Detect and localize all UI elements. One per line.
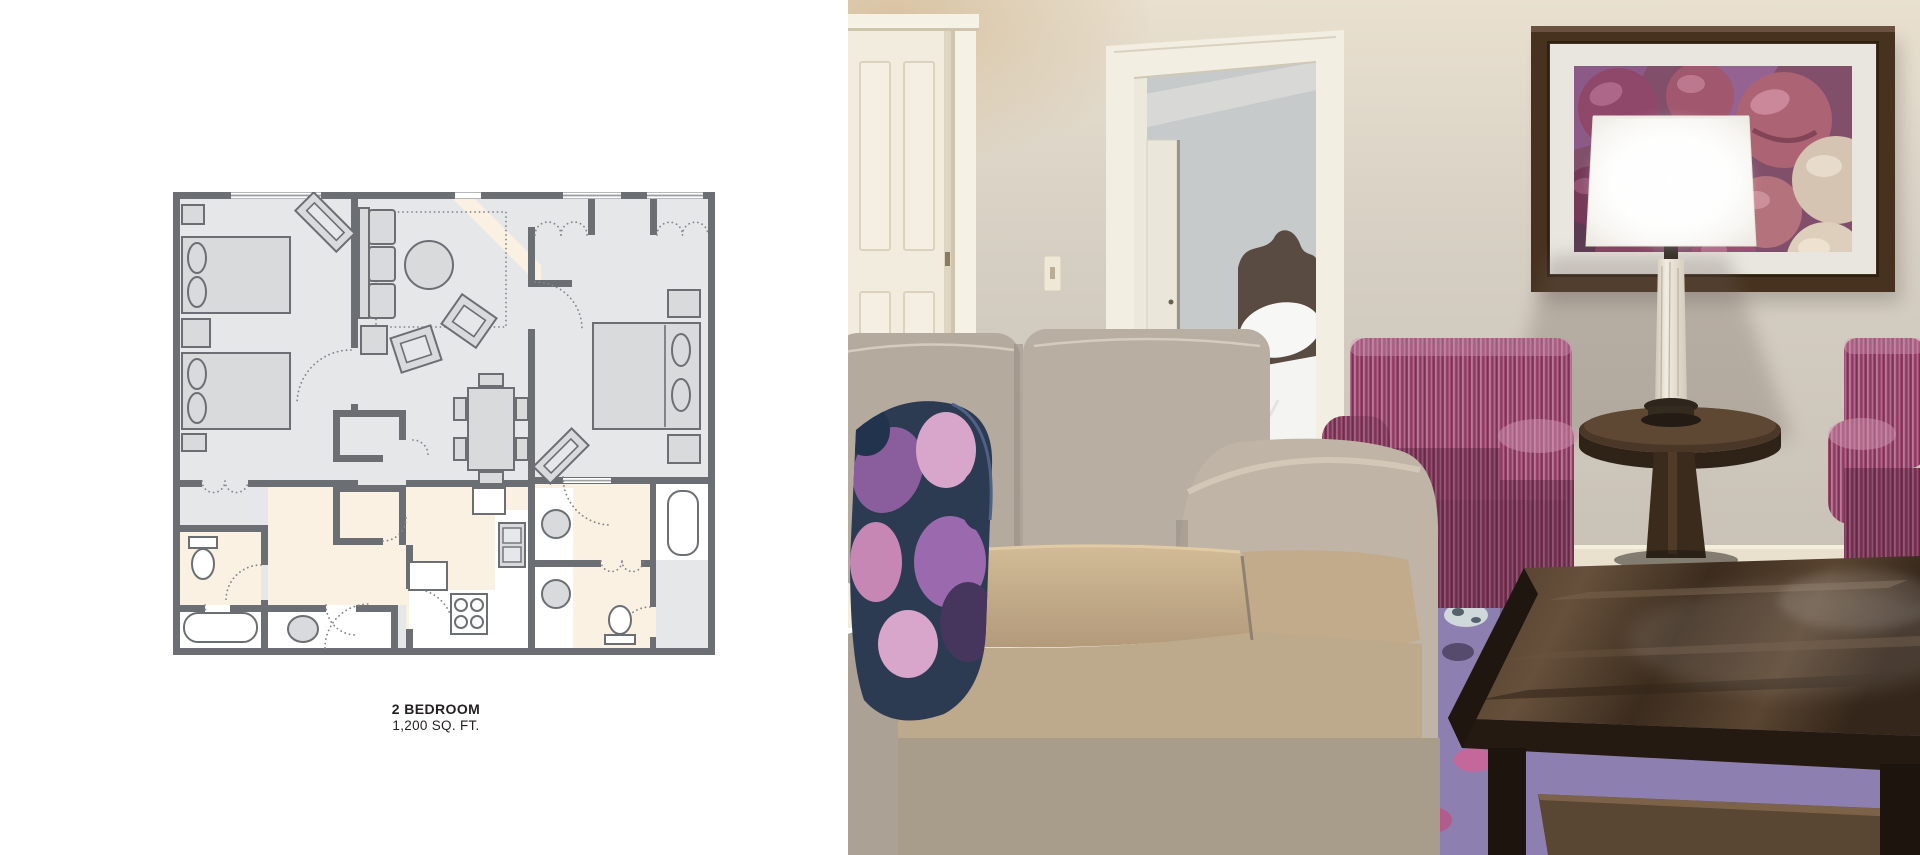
sofa-throw-pillow (848, 401, 996, 720)
nightstand (182, 434, 206, 451)
coffee-table (1448, 556, 1920, 855)
pillow (672, 334, 690, 366)
floorplan-title: 2 BEDROOM (165, 701, 707, 717)
sofa-cushion (369, 284, 395, 318)
floorplan-diagram (173, 192, 715, 655)
pillow (672, 379, 690, 411)
pillow (188, 277, 206, 307)
dining-chair (516, 398, 528, 420)
coffee-table-leg (1880, 764, 1920, 855)
sink (542, 580, 570, 608)
lamp-column (1655, 259, 1687, 404)
nightstand (668, 290, 700, 317)
floorplan-caption: 2 BEDROOM 1,200 SQ. FT. (165, 701, 707, 734)
dining-chair (479, 472, 503, 484)
toilet-tank (605, 635, 635, 644)
bathtub (668, 491, 698, 555)
dining-chair (454, 438, 466, 460)
end-table (361, 326, 387, 354)
sofa-cushion (369, 210, 395, 244)
room-photo-panel (848, 0, 1920, 855)
sink (288, 616, 318, 642)
pillow (188, 359, 206, 389)
nightstand (182, 205, 204, 224)
toilet-bowl (192, 549, 214, 579)
kitchen-sink-cabinet (409, 562, 447, 590)
floorplan-area: 1,200 SQ. FT. (165, 718, 707, 734)
pillow (188, 393, 206, 423)
door-hinge (945, 252, 950, 266)
dining-table (468, 388, 514, 470)
suite-detail-composite: 2 BEDROOM 1,200 SQ. FT. (0, 0, 1920, 855)
sink (542, 510, 570, 538)
sofa-cushion (369, 247, 395, 281)
light-switch (1044, 256, 1061, 291)
pillow (188, 243, 206, 273)
round-table (405, 241, 453, 289)
sofa-back (359, 208, 369, 318)
nightstand (182, 319, 210, 347)
toilet-tank (189, 537, 217, 548)
nightstand (668, 435, 700, 463)
bathtub (184, 613, 257, 642)
dining-chair (516, 438, 528, 460)
fridge (473, 488, 505, 514)
floorplan-panel: 2 BEDROOM 1,200 SQ. FT. (0, 0, 848, 855)
dining-chair (479, 374, 503, 386)
toilet-bowl (609, 606, 631, 634)
coffee-table-leg (1488, 748, 1526, 855)
dining-chair (454, 398, 466, 420)
room-photo (848, 0, 1920, 855)
